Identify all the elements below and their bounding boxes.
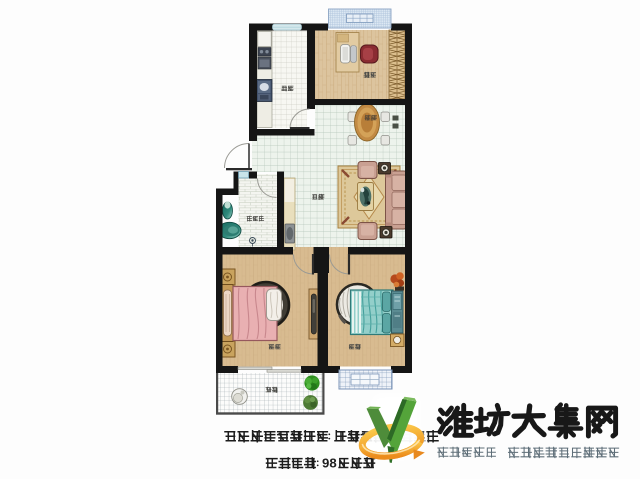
svg-text:98: 98 — [322, 455, 337, 470]
